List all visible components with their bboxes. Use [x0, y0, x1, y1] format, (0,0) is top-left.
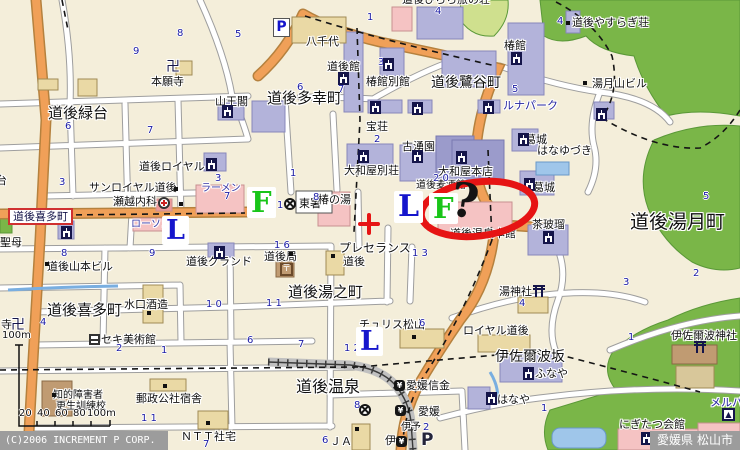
dot-icon: [412, 335, 416, 339]
address-number: 7: [298, 340, 304, 350]
address-number: 1 0: [206, 300, 222, 310]
address-number: 6: [297, 83, 303, 93]
hotel-icon: [338, 72, 349, 85]
annotation-letter-F: F: [247, 187, 276, 218]
hotel-icon: [358, 150, 369, 163]
address-number: 1: [161, 346, 167, 356]
dot-icon: [206, 421, 210, 425]
map-label: 水口酒造: [124, 299, 168, 310]
torii-icon: [694, 341, 706, 353]
map-label: 椿館: [504, 40, 526, 51]
map-label: 湯神社: [499, 286, 532, 297]
hotel-icon: [543, 231, 554, 244]
map-label: 台: [0, 175, 7, 186]
map-label: 聖母: [0, 237, 22, 248]
map-label: 椿館別館: [366, 76, 410, 87]
hotel-icon: [222, 105, 233, 118]
address-number: 6: [247, 336, 253, 346]
address-number: 8: [177, 29, 183, 39]
address-number: 1 1: [141, 414, 157, 424]
map-label: ふなや: [535, 368, 568, 379]
dot-icon: [179, 202, 183, 206]
parkp2-icon: P: [421, 432, 433, 449]
police-icon: [284, 198, 296, 210]
hotel-icon: [483, 101, 494, 114]
address-number: 7: [147, 126, 153, 136]
prefecture-city-badge: 愛媛県松山市: [650, 431, 740, 450]
address-number: 40: [37, 409, 50, 419]
intersection-name-box: 道後喜多町: [8, 208, 73, 225]
annotation-letter-L: L: [356, 327, 383, 356]
map-label: 宝荘: [366, 121, 388, 132]
hotel-icon: [486, 392, 497, 405]
copyright-bar: (C)2006 INCREMENT P CORP.: [0, 431, 168, 450]
police-icon: [359, 404, 371, 416]
map-label: 伊佐爾波坂: [495, 350, 565, 364]
bank-icon: ¥: [396, 436, 407, 447]
hotel-icon: [412, 102, 423, 115]
map-label: 伊: [385, 435, 396, 446]
hotel-icon: [412, 150, 423, 163]
map-label: ラーメン: [201, 184, 241, 194]
address-number: 4: [435, 7, 441, 17]
address-number: 6: [322, 436, 328, 446]
address-number: 9: [133, 47, 139, 57]
address-number: 100m: [87, 409, 116, 419]
map-label: 瀬越内科: [113, 196, 157, 207]
address-number: 1 6: [274, 241, 290, 251]
address-number: 1 3: [412, 249, 428, 259]
map-base-graphics: [0, 0, 740, 450]
address-number: 5: [703, 192, 709, 202]
map-label: 伊佐爾波神社: [671, 330, 737, 341]
map-label: 道後多幸町: [267, 91, 342, 106]
map-label: 大和屋別荘: [344, 165, 399, 176]
hospital-icon: [158, 197, 170, 209]
address-number: 2 0: [433, 174, 449, 184]
torii-icon: [533, 285, 545, 297]
map-label: 知的障害者: [53, 391, 103, 401]
hotel-icon: [61, 226, 72, 239]
map-label: 道後喜多町: [47, 303, 122, 318]
map-label: ルナパーク: [503, 100, 558, 111]
map-label: 道後ロイヤル: [139, 161, 205, 172]
map-label: 道後ひらら旅の荘: [402, 0, 490, 5]
map-label: 道後やすらぎ荘: [572, 17, 649, 28]
map-canvas[interactable]: (C)2006 INCREMENT P CORP. 愛媛県松山市 道後緑台道後多…: [0, 0, 740, 450]
map-label: プレセランス: [339, 242, 411, 254]
hotel-icon: [456, 151, 467, 164]
map-label: にぎたつ会館: [619, 419, 685, 430]
dot-icon: [566, 21, 570, 25]
address-number: 2: [374, 135, 380, 145]
map-label: サンロイヤル道後: [89, 182, 177, 193]
address-number: 3: [59, 178, 65, 188]
address-number: 5: [512, 85, 518, 95]
address-number: 2: [116, 344, 122, 354]
museum-icon: [89, 334, 100, 345]
address-number: 1: [290, 169, 296, 179]
map-label: 卍: [166, 60, 180, 74]
address-number: 4: [40, 318, 46, 328]
address-number: 4: [557, 17, 563, 27]
address-number: 100m: [2, 331, 31, 341]
address-number: 7: [338, 85, 344, 95]
address-number: 1: [628, 333, 634, 343]
map-label: セキ美術館: [101, 334, 156, 345]
map-label: 椿の湯: [318, 194, 351, 205]
dot-icon: [45, 262, 49, 266]
city-label: 松山市: [697, 433, 733, 447]
address-number: 9: [149, 249, 155, 259]
address-number: 3: [215, 174, 221, 184]
address-number: 7: [203, 440, 209, 450]
dot-icon: [147, 311, 151, 315]
bank-icon: ¥: [394, 380, 405, 391]
map-label: 茶玻瑠: [532, 219, 565, 230]
map-label: 道後温泉: [296, 379, 360, 395]
map-label: 道後湯之町: [288, 285, 363, 300]
hotel-icon: [214, 246, 225, 259]
map-label: 道後山本ビル: [47, 261, 113, 272]
address-number: 80: [73, 409, 86, 419]
map-label: 郵政公社宿舎: [136, 393, 202, 404]
shrine-courtyard: [676, 366, 714, 388]
hotel-icon: [524, 178, 535, 191]
address-number: 8: [61, 249, 67, 259]
hotel-icon: [383, 58, 394, 71]
address-number: 3: [623, 278, 629, 288]
hotel-icon: [518, 133, 529, 146]
map-label: 道後館: [327, 61, 360, 72]
map-label: ＪＡ: [330, 436, 352, 447]
annotation-letter-L: L: [162, 216, 189, 245]
dot-icon: [289, 252, 293, 256]
hotel-icon: [523, 367, 534, 380]
address-number: 1: [367, 13, 373, 23]
map-label: 道後緑台: [48, 106, 108, 121]
address-number: 4: [519, 299, 525, 309]
address-number: 7: [224, 192, 230, 202]
map-label: 八千代: [306, 36, 339, 47]
address-number: 2: [693, 269, 699, 279]
map-label: 伊予: [401, 423, 421, 433]
address-number: 1: [277, 201, 283, 211]
address-number: 6: [419, 319, 425, 329]
parkp-icon: P: [273, 18, 290, 37]
hotel-icon: [206, 158, 217, 171]
hotel-icon: [370, 101, 381, 114]
annotation-letter-L: L: [394, 191, 423, 223]
map-label: メルパ: [710, 397, 740, 408]
dot-icon: [583, 81, 587, 85]
map-label: 愛媛信金: [406, 380, 450, 391]
address-number: 1 1: [266, 299, 282, 309]
address-number: 20: [19, 409, 32, 419]
map-label: 道後湯月町: [630, 213, 725, 232]
address-number: 8: [313, 193, 319, 203]
map-label: ロイヤル道後: [463, 325, 529, 336]
map-label: 湯月山ビル: [592, 78, 647, 89]
map-label: 道後鷺谷町: [431, 76, 501, 90]
address-number: 6: [65, 122, 71, 132]
dot-icon: [331, 254, 335, 258]
hotel-icon: [596, 108, 607, 121]
map-label: 道後温泉本館: [450, 228, 516, 239]
address-number: 5: [235, 30, 241, 40]
post-icon: 〒: [280, 263, 293, 276]
dot-icon: [52, 393, 56, 397]
map-label: 本願寺: [151, 76, 184, 87]
prefecture-label: 愛媛県: [657, 433, 693, 447]
dot-icon: [355, 427, 359, 431]
map-label: はなゆづき: [537, 145, 592, 156]
bldgtri-icon: ▲: [722, 408, 735, 421]
address-number: 60: [55, 409, 68, 419]
hotel-icon: [511, 52, 522, 65]
map-label: 葛城: [533, 182, 555, 193]
map-label: 道後: [343, 256, 365, 267]
dot-icon: [163, 384, 167, 388]
dot-icon: [174, 187, 178, 191]
map-label: 愛媛: [418, 406, 440, 417]
bank-icon: ¥: [395, 405, 406, 416]
map-label: はなや: [497, 394, 530, 405]
address-number: 1: [541, 404, 547, 414]
